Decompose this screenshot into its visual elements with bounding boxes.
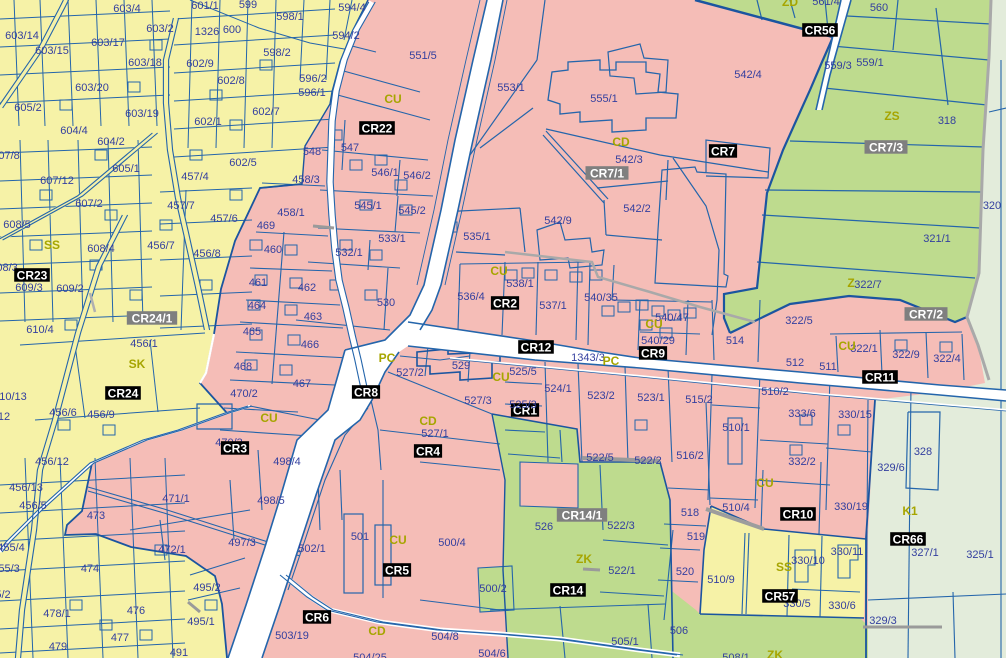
- svg-text:330/10: 330/10: [791, 555, 825, 567]
- svg-text:468: 468: [234, 361, 252, 373]
- svg-text:598/2: 598/2: [263, 47, 291, 59]
- svg-text:608/4: 608/4: [87, 243, 115, 255]
- svg-text:529: 529: [452, 360, 470, 372]
- svg-text:456/5: 456/5: [19, 500, 47, 512]
- svg-text:512: 512: [786, 357, 804, 369]
- svg-text:456/12: 456/12: [35, 456, 69, 468]
- svg-text:329/3: 329/3: [869, 615, 897, 627]
- svg-text:SS: SS: [44, 238, 60, 252]
- svg-text:522/3: 522/3: [607, 520, 635, 532]
- svg-text:526: 526: [535, 521, 553, 533]
- svg-text:CR14/1: CR14/1: [562, 508, 603, 522]
- svg-text:CR8: CR8: [354, 385, 378, 399]
- svg-text:598/1: 598/1: [276, 11, 304, 23]
- svg-text:476: 476: [127, 605, 145, 617]
- svg-text:471/1: 471/1: [162, 493, 190, 505]
- svg-text:505/1: 505/1: [611, 636, 639, 648]
- svg-text:CR7/2: CR7/2: [909, 307, 943, 321]
- svg-text:CR10: CR10: [783, 507, 814, 521]
- svg-text:330/15: 330/15: [838, 409, 872, 421]
- svg-text:1343/3: 1343/3: [571, 352, 605, 364]
- svg-text:602/9: 602/9: [186, 58, 214, 70]
- svg-text:ZS: ZS: [884, 109, 899, 123]
- svg-text:CR22: CR22: [362, 121, 393, 135]
- svg-text:498/5: 498/5: [257, 495, 285, 507]
- svg-text:456/9: 456/9: [87, 409, 115, 421]
- svg-text:465: 465: [243, 326, 261, 338]
- svg-text:511: 511: [819, 361, 837, 373]
- svg-text:603/19: 603/19: [125, 108, 159, 120]
- svg-text:602/7: 602/7: [252, 106, 280, 118]
- svg-text:CD: CD: [368, 624, 386, 638]
- svg-text:CU: CU: [645, 317, 662, 331]
- svg-text:594/2: 594/2: [332, 30, 360, 42]
- svg-text:610/4: 610/4: [26, 324, 54, 336]
- svg-text:CU: CU: [492, 370, 509, 384]
- svg-text:495/2: 495/2: [193, 582, 221, 594]
- svg-text:497/3: 497/3: [228, 537, 256, 549]
- svg-text:330/11: 330/11: [831, 546, 864, 558]
- svg-text:CR24/1: CR24/1: [132, 311, 173, 325]
- svg-text:479: 479: [49, 641, 67, 653]
- svg-text:CR12: CR12: [521, 340, 552, 354]
- svg-text:333/6: 333/6: [788, 408, 816, 420]
- svg-text:515/2: 515/2: [685, 394, 713, 406]
- svg-text:527/2: 527/2: [396, 367, 424, 379]
- svg-text:PC: PC: [603, 354, 620, 368]
- svg-text:599: 599: [239, 0, 257, 11]
- svg-text:510/4: 510/4: [722, 502, 750, 514]
- svg-text:502/1: 502/1: [298, 543, 326, 555]
- svg-text:607/8: 607/8: [0, 150, 20, 162]
- svg-text:CR66: CR66: [893, 532, 924, 546]
- svg-text:321/1: 321/1: [923, 233, 951, 245]
- svg-text:540/35: 540/35: [584, 292, 618, 304]
- svg-text:PC: PC: [379, 351, 396, 365]
- svg-text:601/1: 601/1: [191, 0, 219, 12]
- svg-text:535/1: 535/1: [463, 231, 491, 243]
- svg-text:CU: CU: [490, 264, 507, 278]
- svg-text:503/19: 503/19: [275, 630, 309, 642]
- svg-text:605/2: 605/2: [14, 102, 42, 114]
- svg-text:SK: SK: [129, 357, 146, 371]
- svg-text:455/4: 455/4: [0, 542, 25, 554]
- svg-text:536/4: 536/4: [457, 291, 485, 303]
- svg-text:519: 519: [687, 531, 705, 543]
- svg-text:538/1: 538/1: [506, 278, 534, 290]
- svg-text:546/1: 546/1: [371, 167, 399, 179]
- svg-text:SS: SS: [776, 560, 792, 574]
- svg-text:455/3: 455/3: [0, 563, 20, 575]
- svg-text:329/6: 329/6: [877, 462, 905, 474]
- svg-text:462: 462: [298, 282, 316, 294]
- svg-text:CD: CD: [419, 414, 437, 428]
- svg-text:560: 560: [870, 2, 888, 14]
- svg-text:330/6: 330/6: [828, 600, 856, 612]
- svg-text:542/3: 542/3: [615, 154, 643, 166]
- svg-text:527/3: 527/3: [464, 395, 492, 407]
- svg-text:10/13: 10/13: [0, 391, 27, 403]
- svg-text:604/2: 604/2: [97, 136, 125, 148]
- svg-text:Z: Z: [847, 276, 854, 290]
- svg-text:603/15: 603/15: [35, 45, 69, 57]
- svg-text:320: 320: [983, 200, 1001, 212]
- svg-text:518: 518: [681, 507, 699, 519]
- svg-text:555/1: 555/1: [590, 93, 618, 105]
- svg-text:ZK: ZK: [767, 648, 783, 658]
- svg-text:520: 520: [676, 566, 694, 578]
- svg-text:495/1: 495/1: [187, 616, 215, 628]
- svg-text:542/9: 542/9: [544, 215, 572, 227]
- svg-text:603/20: 603/20: [75, 82, 109, 94]
- svg-text:608/5: 608/5: [3, 219, 31, 231]
- svg-text:548: 548: [303, 146, 321, 158]
- svg-text:522/5: 522/5: [586, 452, 614, 464]
- svg-text:504/25: 504/25: [353, 652, 387, 658]
- svg-text:CU: CU: [260, 411, 277, 425]
- svg-text:523/1: 523/1: [637, 392, 665, 404]
- svg-text:478/1: 478/1: [43, 608, 71, 620]
- svg-text:469: 469: [257, 220, 275, 232]
- svg-text:504/8: 504/8: [431, 631, 459, 643]
- svg-text:522/1: 522/1: [608, 565, 636, 577]
- svg-text:472/1: 472/1: [158, 544, 186, 556]
- svg-text:CR23: CR23: [17, 268, 48, 282]
- svg-text:456/8: 456/8: [193, 248, 221, 260]
- svg-text:CR5: CR5: [385, 563, 409, 577]
- svg-text:ZD: ZD: [782, 0, 798, 9]
- svg-text:CU: CU: [756, 476, 773, 490]
- svg-text:603/17: 603/17: [91, 37, 125, 49]
- svg-text:5/2: 5/2: [0, 589, 11, 601]
- svg-text:CR4: CR4: [416, 444, 440, 458]
- svg-text:474: 474: [81, 563, 99, 575]
- svg-text:457/7: 457/7: [167, 200, 195, 212]
- svg-text:CD: CD: [612, 135, 630, 149]
- svg-text:332/2: 332/2: [788, 456, 816, 468]
- svg-text:CR7: CR7: [711, 144, 735, 158]
- svg-text:CR6: CR6: [305, 610, 329, 624]
- svg-text:594/4: 594/4: [338, 2, 366, 14]
- svg-text:533/1: 533/1: [378, 233, 406, 245]
- svg-text:CR9: CR9: [641, 346, 665, 360]
- svg-text:602/8: 602/8: [217, 75, 245, 87]
- svg-text:527/1: 527/1: [421, 428, 449, 440]
- svg-text:602/5: 602/5: [229, 157, 257, 169]
- svg-text:537/1: 537/1: [539, 300, 567, 312]
- svg-text:607/2: 607/2: [75, 198, 103, 210]
- svg-text:CR56: CR56: [805, 23, 836, 37]
- svg-text:CU: CU: [838, 339, 855, 353]
- svg-text:ZK: ZK: [576, 552, 592, 566]
- svg-text:559/3: 559/3: [824, 60, 852, 72]
- svg-text:456/6: 456/6: [49, 407, 77, 419]
- svg-text:525/3: 525/3: [509, 399, 537, 411]
- svg-text:CR11: CR11: [865, 370, 895, 384]
- svg-text:CR7/3: CR7/3: [869, 140, 903, 154]
- svg-text:525/5: 525/5: [509, 366, 537, 378]
- svg-text:473: 473: [87, 510, 105, 522]
- svg-text:460: 460: [264, 244, 282, 256]
- svg-text:609/3: 609/3: [15, 282, 43, 294]
- svg-text:596/2: 596/2: [299, 73, 327, 85]
- svg-text:510/2: 510/2: [761, 386, 789, 398]
- svg-text:547: 547: [341, 142, 359, 154]
- svg-text:604/4: 604/4: [60, 125, 88, 137]
- svg-text:514: 514: [726, 335, 744, 347]
- svg-text:330/19: 330/19: [834, 501, 868, 513]
- svg-text:501: 501: [351, 531, 369, 543]
- svg-text:500/2: 500/2: [479, 583, 507, 595]
- svg-text:540/29: 540/29: [641, 335, 675, 347]
- svg-text:596/1: 596/1: [298, 87, 326, 99]
- svg-text:461: 461: [249, 277, 267, 289]
- svg-text:CU: CU: [384, 92, 401, 106]
- svg-text:504/6: 504/6: [478, 648, 506, 658]
- svg-text:457/4: 457/4: [181, 171, 209, 183]
- svg-text:457/6: 457/6: [210, 213, 238, 225]
- svg-text:545/1: 545/1: [354, 200, 382, 212]
- svg-text:477: 477: [111, 632, 129, 644]
- svg-text:CR57: CR57: [765, 589, 796, 603]
- svg-text:522/2: 522/2: [634, 455, 662, 467]
- svg-text:466: 466: [301, 339, 319, 351]
- svg-text:506: 506: [670, 625, 688, 637]
- svg-text:463: 463: [304, 311, 322, 323]
- svg-text:609/2: 609/2: [56, 283, 84, 295]
- svg-text:12: 12: [0, 411, 10, 423]
- svg-text:CR14: CR14: [553, 583, 584, 597]
- svg-text:322/9: 322/9: [892, 349, 920, 361]
- svg-text:603/2: 603/2: [146, 23, 174, 35]
- svg-text:318: 318: [938, 115, 956, 127]
- svg-text:CR2: CR2: [493, 296, 517, 310]
- svg-text:322/4: 322/4: [933, 353, 961, 365]
- svg-text:603/14: 603/14: [5, 30, 39, 42]
- svg-text:467: 467: [293, 378, 311, 390]
- svg-text:CR7/1: CR7/1: [590, 166, 624, 180]
- svg-text:458/1: 458/1: [277, 207, 305, 219]
- svg-text:CR24: CR24: [108, 386, 139, 400]
- svg-text:322/5: 322/5: [785, 315, 813, 327]
- svg-text:456/7: 456/7: [147, 240, 175, 252]
- svg-text:523/2: 523/2: [587, 390, 615, 402]
- svg-text:607/12: 607/12: [40, 175, 74, 187]
- svg-text:542/2: 542/2: [623, 203, 651, 215]
- svg-text:322/7: 322/7: [854, 279, 882, 291]
- svg-text:K1: K1: [902, 504, 918, 518]
- svg-text:510/1: 510/1: [722, 422, 750, 434]
- svg-text:532/1: 532/1: [335, 247, 363, 259]
- svg-text:524/1: 524/1: [544, 383, 572, 395]
- svg-text:328: 328: [914, 446, 932, 458]
- svg-text:602/1: 602/1: [194, 116, 222, 128]
- svg-text:CR3: CR3: [223, 441, 247, 455]
- svg-text:500/4: 500/4: [438, 537, 466, 549]
- svg-text:530: 530: [377, 297, 395, 309]
- svg-text:542/4: 542/4: [734, 69, 762, 81]
- svg-text:553/1: 553/1: [497, 82, 525, 94]
- svg-text:603/18: 603/18: [128, 57, 162, 69]
- svg-text:491: 491: [170, 647, 188, 658]
- svg-text:551/5: 551/5: [409, 50, 437, 62]
- svg-text:458/3: 458/3: [292, 174, 320, 186]
- svg-text:464: 464: [248, 300, 266, 312]
- svg-text:508/1: 508/1: [722, 652, 750, 658]
- svg-text:470/2: 470/2: [230, 388, 258, 400]
- svg-text:600: 600: [223, 24, 241, 36]
- svg-text:456/1: 456/1: [130, 338, 158, 350]
- svg-text:516/2: 516/2: [676, 450, 704, 462]
- svg-text:545/2: 545/2: [398, 205, 426, 217]
- svg-text:546/2: 546/2: [403, 170, 431, 182]
- svg-text:456/13: 456/13: [9, 482, 43, 494]
- svg-text:559/1: 559/1: [856, 57, 884, 69]
- svg-text:510/9: 510/9: [707, 574, 735, 586]
- svg-text:1326: 1326: [195, 26, 219, 38]
- svg-text:325/1: 325/1: [966, 549, 994, 561]
- svg-text:603/4: 603/4: [113, 3, 141, 15]
- svg-text:CU: CU: [389, 533, 406, 547]
- svg-text:327/1: 327/1: [911, 547, 939, 559]
- svg-text:605/1: 605/1: [112, 163, 140, 175]
- svg-text:561/4: 561/4: [812, 0, 840, 8]
- svg-text:498/4: 498/4: [273, 456, 301, 468]
